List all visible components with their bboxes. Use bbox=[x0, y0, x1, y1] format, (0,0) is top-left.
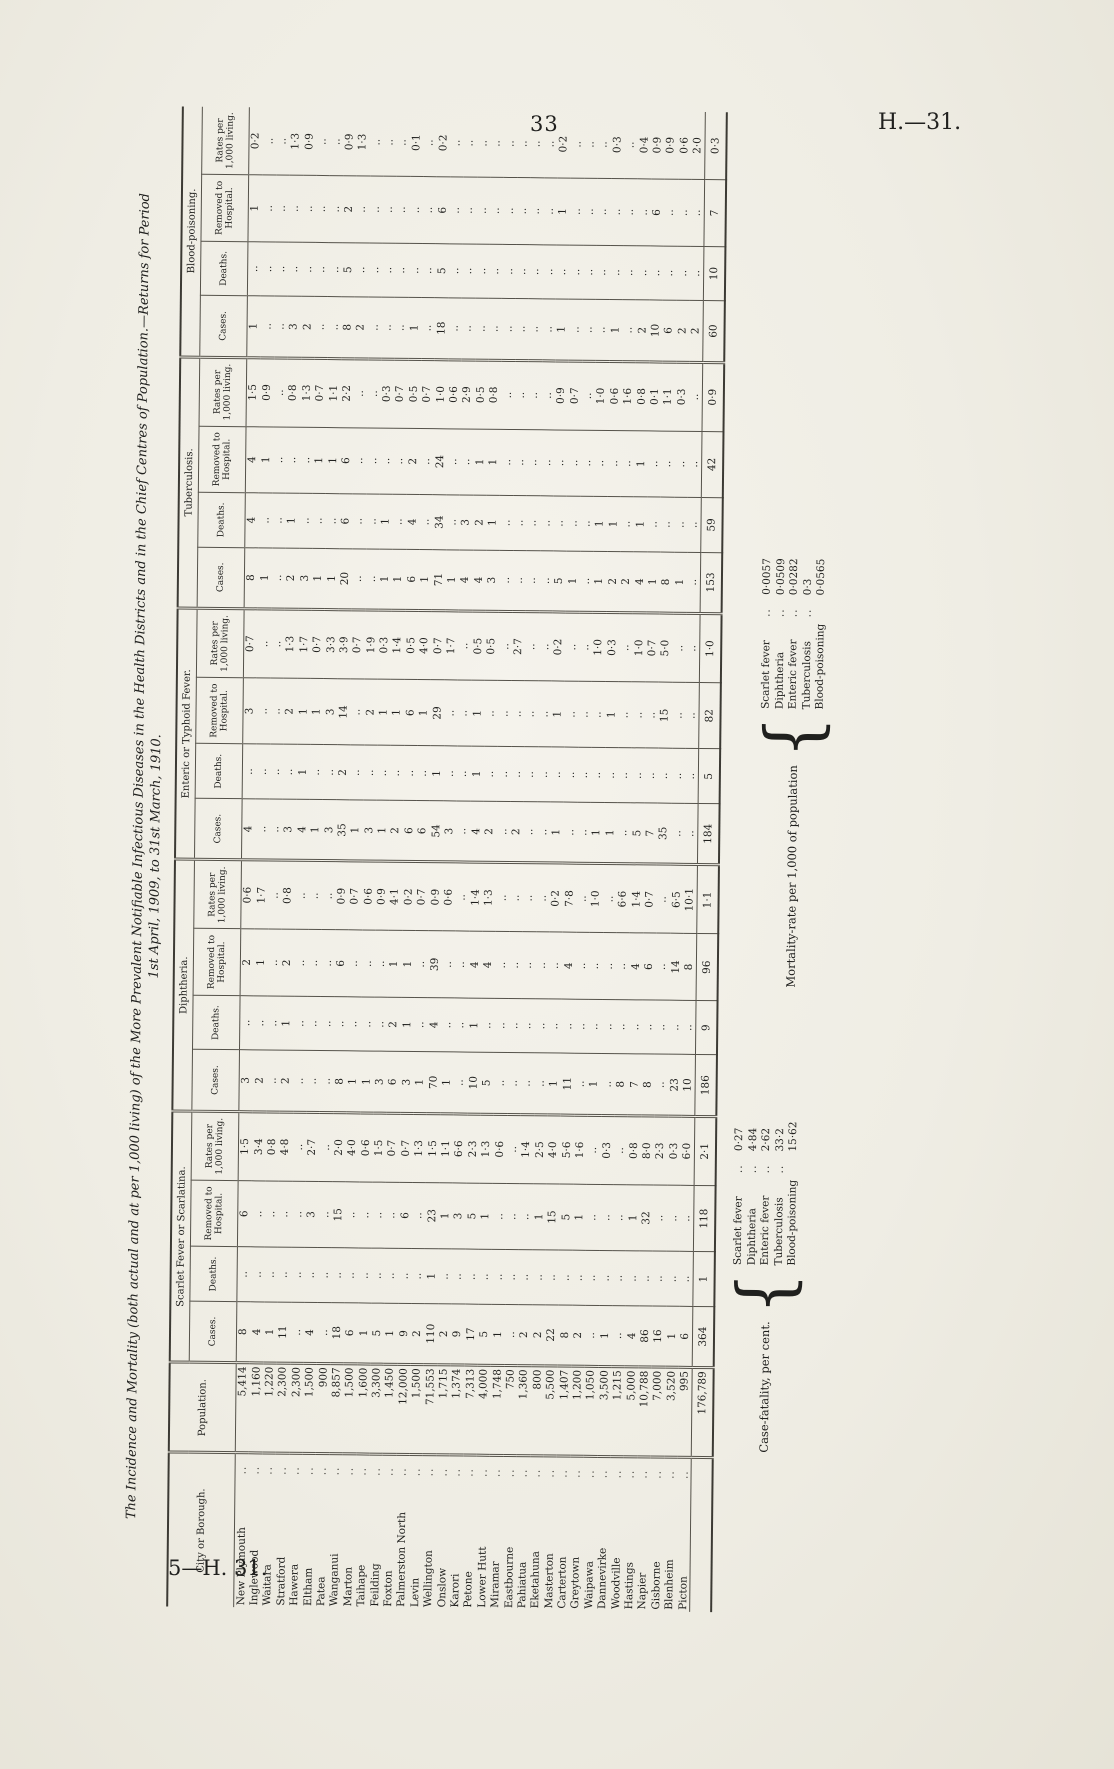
data-cell: .. bbox=[369, 176, 383, 243]
city-name: Gisborne bbox=[650, 1561, 663, 1609]
sub-column-header: Cases. bbox=[194, 798, 242, 860]
population-cell: 900 bbox=[316, 1364, 330, 1454]
disease-group-header: Blood-poisoning. bbox=[180, 107, 202, 357]
data-cell: .. bbox=[458, 611, 472, 680]
data-cell: 4 bbox=[633, 551, 647, 612]
city-cell: Lower Hutt.. bbox=[475, 1456, 490, 1610]
data-cell: .. bbox=[276, 108, 290, 176]
data-cell: .. bbox=[417, 746, 431, 801]
data-cell: .. bbox=[534, 1053, 548, 1114]
data-cell: .. bbox=[269, 744, 283, 799]
data-cell: .. bbox=[294, 930, 308, 997]
data-cell: 0·4 bbox=[637, 111, 651, 179]
leader-dots: .. bbox=[464, 1468, 476, 1477]
data-cell: .. bbox=[385, 1249, 399, 1304]
data-cell: .. bbox=[521, 999, 535, 1054]
data-cell: 1·7 bbox=[255, 860, 269, 929]
data-cell: 2 bbox=[689, 301, 704, 362]
city-column-header: City or Borough. bbox=[167, 1452, 235, 1607]
data-cell: .. bbox=[449, 177, 463, 244]
population-cell: 1,748 bbox=[490, 1366, 504, 1456]
data-cell: .. bbox=[318, 1248, 332, 1303]
data-cell: .. bbox=[514, 429, 528, 496]
population-cell: 1,450 bbox=[383, 1364, 397, 1454]
data-cell: .. bbox=[522, 932, 536, 999]
data-cell: .. bbox=[603, 864, 617, 933]
data-cell: 4 bbox=[629, 933, 643, 1000]
data-cell: 0·6 bbox=[442, 862, 456, 931]
data-cell: 1 bbox=[551, 681, 565, 748]
data-cell: 0·7 bbox=[431, 611, 445, 680]
data-cell: 1 bbox=[417, 680, 431, 747]
data-cell: 8 bbox=[244, 547, 259, 608]
data-cell: .. bbox=[599, 1251, 613, 1306]
data-cell: 1·1 bbox=[662, 362, 676, 431]
data-cell: .. bbox=[595, 300, 609, 361]
leader-dots: .. bbox=[678, 1470, 690, 1479]
data-cell: .. bbox=[441, 931, 455, 998]
data-cell: .. bbox=[393, 494, 407, 549]
leader-dots: .. bbox=[504, 1468, 516, 1477]
data-cell: .. bbox=[613, 1184, 627, 1251]
data-cell: 1 bbox=[468, 998, 482, 1053]
population-cell: 3,500 bbox=[597, 1367, 611, 1457]
data-cell: 15 bbox=[332, 1181, 346, 1248]
data-cell: .. bbox=[521, 1053, 535, 1114]
data-cell: .. bbox=[621, 430, 635, 497]
data-cell: .. bbox=[549, 932, 563, 999]
city-cell: Waitara.. bbox=[261, 1453, 276, 1607]
population-cell: 1,215 bbox=[611, 1367, 625, 1457]
data-cell: 2·5 bbox=[533, 1115, 547, 1184]
data-cell: 1 bbox=[566, 551, 580, 612]
note-disease-name: Tuberculosis bbox=[773, 1173, 787, 1265]
data-cell: 1 bbox=[376, 800, 390, 861]
city-cell: Petone.. bbox=[462, 1456, 477, 1610]
data-cell: 0·5 bbox=[407, 359, 421, 428]
data-cell: .. bbox=[666, 1185, 680, 1252]
data-cell: 1 bbox=[430, 746, 444, 801]
data-cell: 1 bbox=[309, 799, 323, 860]
city-name: Stratford bbox=[275, 1557, 288, 1606]
data-cell: 6 bbox=[399, 1182, 413, 1249]
population-cell: 5,000 bbox=[624, 1367, 638, 1457]
data-cell: 1·5 bbox=[426, 1113, 440, 1182]
city-name: Karori bbox=[449, 1574, 461, 1608]
data-cell: .. bbox=[576, 864, 590, 933]
population-cell: 4,000 bbox=[477, 1365, 491, 1455]
data-cell: 2 bbox=[636, 300, 650, 361]
data-cell: .. bbox=[583, 245, 597, 300]
data-cell: .. bbox=[443, 746, 457, 801]
data-cell: 6 bbox=[339, 494, 353, 549]
data-cell: .. bbox=[553, 496, 567, 551]
data-cell: .. bbox=[559, 1250, 573, 1305]
city-name: Levin bbox=[409, 1578, 421, 1607]
data-cell: 8 bbox=[641, 1054, 655, 1115]
data-cell: .. bbox=[331, 1248, 345, 1303]
data-cell: 3 bbox=[282, 799, 296, 860]
data-cell: 1 bbox=[440, 1052, 454, 1113]
left-brace-glyph: { bbox=[731, 1272, 801, 1315]
data-cell: 3·9 bbox=[338, 610, 352, 679]
data-cell: .. bbox=[532, 1250, 546, 1305]
data-cell: 1 bbox=[325, 548, 339, 609]
data-cell: .. bbox=[528, 299, 542, 360]
city-name: Napier bbox=[637, 1573, 649, 1610]
city-name: Masterton bbox=[543, 1553, 556, 1608]
population-cell: 10,788 bbox=[637, 1367, 651, 1457]
data-cell: 2 bbox=[240, 929, 255, 996]
data-cell: .. bbox=[488, 299, 502, 360]
data-cell: .. bbox=[636, 245, 650, 300]
data-cell: .. bbox=[575, 999, 589, 1054]
city-cell: Hastings.. bbox=[622, 1457, 637, 1611]
data-cell: .. bbox=[239, 996, 253, 1051]
data-cell: .. bbox=[266, 1050, 280, 1111]
footnotes: Case-fatality, per cent. { Scarlet fever… bbox=[730, 112, 834, 1453]
data-cell: .. bbox=[537, 747, 551, 802]
data-cell: 2 bbox=[301, 297, 315, 358]
data-cell: 0·6 bbox=[608, 361, 622, 430]
city-cell: Wellington.. bbox=[422, 1455, 437, 1609]
data-cell: 4 bbox=[250, 1302, 264, 1363]
leader-dots: .. bbox=[517, 1469, 529, 1478]
data-cell: .. bbox=[358, 1248, 372, 1303]
data-cell: 1 bbox=[349, 800, 363, 861]
data-cell: 29 bbox=[431, 680, 445, 747]
data-cell: .. bbox=[358, 1182, 372, 1249]
data-cell: 1 bbox=[419, 549, 433, 610]
disease-group-header: Tuberculosis. bbox=[178, 357, 200, 609]
data-cell: 8·0 bbox=[640, 1116, 654, 1185]
data-cell: .. bbox=[348, 930, 362, 997]
data-cell: .. bbox=[497, 747, 511, 802]
data-cell: 5 bbox=[480, 1053, 494, 1114]
data-cell: .. bbox=[329, 176, 343, 243]
data-cell: .. bbox=[465, 1249, 479, 1304]
data-cell: .. bbox=[361, 997, 375, 1052]
city-cell: Taihape.. bbox=[355, 1454, 370, 1608]
population-cell: 750 bbox=[504, 1366, 518, 1456]
population-cell: 1,407 bbox=[557, 1366, 571, 1456]
data-cell: .. bbox=[263, 107, 277, 175]
data-cell: .. bbox=[565, 681, 579, 748]
data-cell: .. bbox=[385, 1182, 399, 1249]
data-cell: .. bbox=[571, 111, 585, 179]
data-cell: .. bbox=[583, 178, 597, 245]
data-cell: 1 bbox=[533, 1184, 547, 1251]
data-cell: 4 bbox=[459, 550, 473, 611]
city-cell: Gisborne.. bbox=[649, 1457, 664, 1611]
data-cell: .. bbox=[462, 244, 476, 299]
city-cell: Hawera.. bbox=[288, 1454, 303, 1608]
data-cell: 1 bbox=[604, 803, 618, 864]
rotated-table-block: The Incidence and Mortality (both actual… bbox=[122, 106, 898, 1614]
data-cell: .. bbox=[247, 241, 261, 296]
data-cell: .. bbox=[291, 1248, 305, 1303]
leader-dots: .. bbox=[317, 1466, 329, 1475]
data-cell: .. bbox=[541, 360, 555, 429]
city-name: Marton bbox=[342, 1567, 354, 1606]
note-disease-name: Diphtheria bbox=[746, 1173, 760, 1265]
data-cell: 3 bbox=[362, 800, 376, 861]
data-cell: .. bbox=[594, 430, 608, 497]
data-cell: 4·0 bbox=[418, 610, 432, 679]
data-cell: 1 bbox=[326, 427, 340, 494]
data-cell: 0·3 bbox=[600, 1115, 614, 1184]
city-cell: Miramar.. bbox=[489, 1456, 504, 1610]
data-cell: .. bbox=[255, 799, 269, 860]
data-cell: .. bbox=[278, 1181, 292, 1248]
data-cell: 1 bbox=[357, 1303, 371, 1364]
data-cell: .. bbox=[456, 801, 470, 862]
data-cell: 4·0 bbox=[547, 1115, 561, 1184]
data-cell: .. bbox=[367, 359, 381, 428]
data-cell: .. bbox=[589, 933, 603, 1000]
leader-dots: .. bbox=[638, 1470, 650, 1479]
data-cell: 1 bbox=[408, 298, 422, 359]
city-name: Onslow bbox=[436, 1568, 448, 1608]
note-leader-dots: .. bbox=[774, 595, 788, 617]
city-name: Woodville bbox=[610, 1557, 623, 1609]
data-cell: .. bbox=[372, 1182, 386, 1249]
population-cell: 5,500 bbox=[544, 1366, 558, 1456]
data-cell: 0·8 bbox=[281, 860, 295, 929]
data-cell: .. bbox=[272, 493, 286, 548]
data-cell: 5 bbox=[559, 1184, 573, 1251]
data-cell: .. bbox=[253, 996, 267, 1051]
data-cell: .. bbox=[257, 609, 271, 678]
data-cell: .. bbox=[423, 109, 437, 177]
data-cell: 0·9 bbox=[664, 112, 678, 180]
sub-column-header: Deaths. bbox=[192, 995, 240, 1050]
data-cell: .. bbox=[251, 1181, 265, 1248]
note-disease-name: Blood-poisoning bbox=[786, 1174, 800, 1266]
data-cell: .. bbox=[374, 931, 388, 998]
data-cell: 2·3 bbox=[654, 1116, 668, 1185]
data-cell: .. bbox=[542, 299, 556, 360]
data-cell: 1 bbox=[384, 1303, 398, 1364]
data-cell: 3 bbox=[373, 1052, 387, 1113]
data-cell: 0·6 bbox=[241, 860, 256, 929]
city-cell: Masterton.. bbox=[542, 1456, 557, 1610]
data-cell: 1 bbox=[379, 549, 393, 610]
data-cell: 6 bbox=[344, 1303, 358, 1364]
note-leader-dots bbox=[815, 595, 829, 617]
data-cell: 2 bbox=[571, 1305, 585, 1366]
data-cell: .. bbox=[505, 1304, 519, 1365]
note-item: Blood-poisoning0·0565 bbox=[814, 551, 829, 709]
data-cell: 6·0 bbox=[680, 1116, 695, 1185]
data-cell: 6 bbox=[436, 177, 450, 244]
population-cell: 1,200 bbox=[571, 1366, 585, 1456]
data-cell: .. bbox=[516, 244, 530, 299]
note-leader-dots: .. bbox=[788, 595, 802, 617]
population-cell: 1,160 bbox=[249, 1363, 263, 1453]
data-cell: .. bbox=[581, 361, 595, 430]
sub-column-header: Deaths. bbox=[190, 1246, 238, 1301]
data-cell: .. bbox=[444, 680, 458, 747]
data-cell: .. bbox=[587, 1115, 601, 1184]
data-cell: 0·8 bbox=[627, 1116, 641, 1185]
data-cell: .. bbox=[504, 110, 518, 178]
data-cell: .. bbox=[415, 931, 429, 998]
sub-column-header: Rates per 1,000 living. bbox=[196, 608, 244, 678]
table-body: New Plymouth..5,4148..61·53..20·64..30·7… bbox=[234, 107, 727, 1612]
data-cell: .. bbox=[354, 358, 368, 427]
city-cell: Patea.. bbox=[315, 1454, 330, 1608]
data-cell: .. bbox=[628, 1000, 642, 1055]
data-cell: .. bbox=[674, 431, 688, 498]
data-cell: 1 bbox=[390, 679, 404, 746]
data-cell: .. bbox=[423, 177, 437, 244]
data-cell: 39 bbox=[428, 931, 442, 998]
data-cell: .. bbox=[597, 179, 611, 246]
population-column-header: Population. bbox=[169, 1362, 236, 1453]
data-cell: 1·3 bbox=[482, 863, 496, 932]
data-cell: 3·4 bbox=[252, 1112, 266, 1181]
data-cell: 1·0 bbox=[592, 612, 606, 681]
data-cell: .. bbox=[540, 496, 554, 551]
data-cell: .. bbox=[618, 748, 632, 803]
data-cell: .. bbox=[286, 427, 300, 494]
leader-dots: .. bbox=[611, 1470, 623, 1479]
data-cell: .. bbox=[320, 1051, 334, 1112]
data-cell: .. bbox=[492, 1250, 506, 1305]
data-cell: 1 bbox=[377, 679, 391, 746]
city-name: Petone bbox=[462, 1571, 474, 1607]
data-cell: .. bbox=[505, 1250, 519, 1305]
data-cell: .. bbox=[368, 297, 382, 358]
data-cell: 0·5 bbox=[405, 610, 419, 679]
data-cell: 10 bbox=[649, 300, 663, 361]
data-cell: 1 bbox=[605, 682, 619, 749]
data-cell: .. bbox=[319, 1112, 333, 1181]
leader-dots: .. bbox=[450, 1468, 462, 1477]
data-cell: .. bbox=[631, 748, 645, 803]
data-cell: .. bbox=[494, 1053, 508, 1114]
data-cell: 6 bbox=[334, 930, 348, 997]
data-cell: .. bbox=[461, 298, 475, 359]
data-cell: 0·7 bbox=[311, 609, 325, 678]
data-cell: 1 bbox=[254, 929, 268, 996]
data-cell: .. bbox=[299, 427, 313, 494]
data-cell: .. bbox=[543, 178, 557, 245]
data-cell: .. bbox=[607, 430, 621, 497]
leader-dots: .. bbox=[571, 1469, 583, 1478]
data-cell: .. bbox=[519, 1250, 533, 1305]
data-cell: .. bbox=[494, 998, 508, 1053]
data-cell: 1 bbox=[479, 1183, 493, 1250]
total-cell: 118 bbox=[694, 1185, 716, 1252]
data-cell: 5 bbox=[478, 1304, 492, 1365]
city-cell: Eketahuna.. bbox=[529, 1456, 544, 1610]
data-cell: .. bbox=[271, 548, 285, 609]
data-cell: 1·1 bbox=[327, 358, 341, 427]
data-cell: .. bbox=[650, 246, 664, 301]
note-disease-name: Enteric fever bbox=[759, 1173, 773, 1265]
leader-dots: .. bbox=[558, 1469, 570, 1478]
data-cell: .. bbox=[420, 428, 434, 495]
data-cell: 3 bbox=[452, 1183, 466, 1250]
city-name: Hastings bbox=[623, 1562, 635, 1609]
data-cell: .. bbox=[289, 175, 303, 242]
city-cell: Levin.. bbox=[408, 1455, 423, 1609]
data-cell: .. bbox=[396, 109, 410, 177]
case-fatality-note: Case-fatality, per cent. { Scarlet fever… bbox=[730, 1107, 801, 1453]
data-cell: 4·0 bbox=[346, 1113, 360, 1182]
city-name: Hawera bbox=[288, 1564, 300, 1606]
city-cell: Wanganui.. bbox=[328, 1454, 343, 1608]
data-cell: .. bbox=[315, 176, 329, 243]
data-cell: .. bbox=[513, 496, 527, 551]
data-cell: 0·6 bbox=[678, 112, 692, 180]
data-cell: .. bbox=[409, 177, 423, 244]
data-cell: .. bbox=[660, 497, 674, 552]
case-fatality-items: Scarlet fever..0·27Diphtheria..4·84Enter… bbox=[732, 1107, 801, 1266]
data-cell: .. bbox=[619, 613, 633, 682]
note-value: 33·2 bbox=[774, 1107, 788, 1151]
city-cell: Pahiatua.. bbox=[515, 1456, 530, 1610]
city-cell: Marton.. bbox=[341, 1454, 356, 1608]
note-item: Blood-poisoning15·62 bbox=[786, 1108, 801, 1266]
data-cell: .. bbox=[507, 1053, 521, 1114]
data-cell: .. bbox=[463, 109, 477, 177]
data-cell: 2·3 bbox=[466, 1114, 480, 1183]
data-cell: .. bbox=[687, 497, 701, 552]
data-cell: .. bbox=[527, 429, 541, 496]
data-cell: .. bbox=[612, 1251, 626, 1306]
data-cell: 0·1 bbox=[648, 361, 662, 430]
data-cell: 3 bbox=[459, 495, 473, 550]
data-cell: 0·5 bbox=[474, 360, 488, 429]
data-cell: 8 bbox=[660, 552, 674, 613]
city-name: New Plymouth bbox=[235, 1527, 248, 1605]
data-cell: 0·6 bbox=[447, 359, 461, 428]
data-cell: .. bbox=[506, 1183, 520, 1250]
data-cell: .. bbox=[575, 933, 589, 1000]
data-cell: .. bbox=[680, 1185, 695, 1252]
data-cell: 0·3 bbox=[675, 362, 689, 431]
data-cell: .. bbox=[577, 802, 591, 863]
data-cell: 6·6 bbox=[616, 864, 630, 933]
data-cell: .. bbox=[448, 298, 462, 359]
data-cell: 0·9 bbox=[260, 357, 274, 426]
total-cell: 364 bbox=[692, 1306, 714, 1368]
data-cell: .. bbox=[682, 1000, 696, 1055]
data-cell: 1 bbox=[609, 300, 623, 361]
data-cell: 1 bbox=[593, 496, 607, 551]
sub-column-header: Removed to Hospital. bbox=[198, 426, 246, 493]
leader-dots: .. bbox=[330, 1467, 342, 1476]
data-cell: .. bbox=[656, 933, 670, 1000]
data-cell: .. bbox=[320, 996, 334, 1051]
data-cell: 8 bbox=[558, 1305, 572, 1366]
data-cell: .. bbox=[584, 111, 598, 179]
data-cell: 2·9 bbox=[461, 360, 475, 429]
data-cell: 1 bbox=[392, 549, 406, 610]
city-name: Carterton bbox=[556, 1556, 569, 1608]
data-cell: 2·0 bbox=[691, 112, 706, 180]
data-cell: 1·3 bbox=[284, 609, 298, 678]
data-cell: 0·7 bbox=[313, 358, 327, 427]
sub-column-header: Removed to Hospital. bbox=[193, 929, 241, 996]
data-cell: .. bbox=[454, 998, 468, 1053]
data-cell: 2 bbox=[283, 678, 297, 745]
data-cell: 32 bbox=[640, 1185, 654, 1252]
data-cell: .. bbox=[672, 613, 686, 682]
